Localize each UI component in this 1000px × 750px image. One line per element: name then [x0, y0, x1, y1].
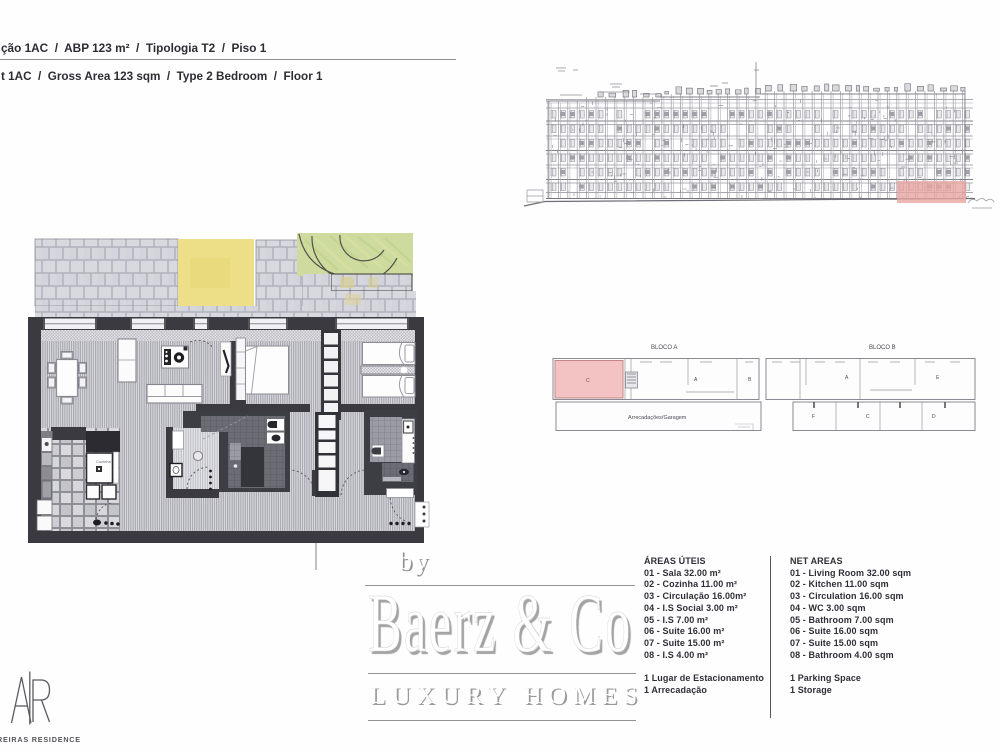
svg-text:C: C — [866, 414, 870, 420]
svg-text:BLOCO B: BLOCO B — [869, 345, 896, 351]
svg-text:D: D — [932, 414, 936, 420]
svg-text:BLOCO A: BLOCO A — [651, 345, 677, 351]
svg-text:F: F — [812, 414, 815, 420]
svg-text:C: C — [586, 378, 590, 384]
svg-text:Arrecadações/Garagem: Arrecadações/Garagem — [628, 415, 687, 421]
svg-text:Cozinha: Cozinha — [96, 459, 111, 464]
